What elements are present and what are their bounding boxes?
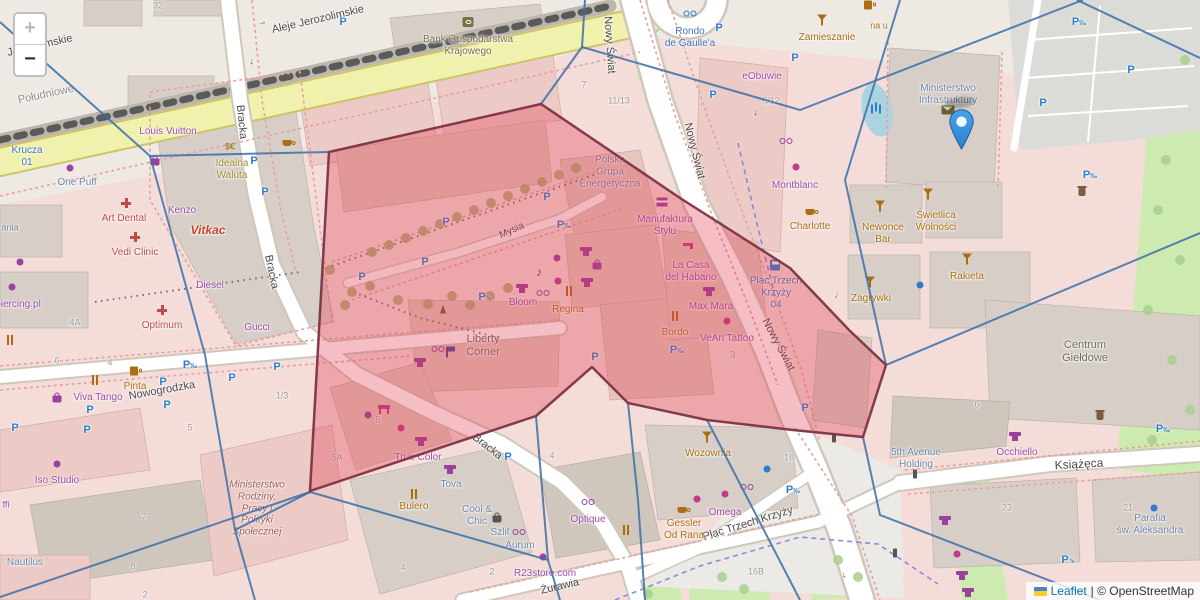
tree-icon — [325, 265, 335, 275]
cup-icon — [678, 507, 687, 513]
monument-icon — [440, 305, 446, 314]
map-label: Zamieszanie — [799, 32, 856, 44]
map-label: 1/3 — [276, 391, 289, 402]
tree-icon — [739, 584, 749, 594]
map-label: Kenzo — [168, 205, 196, 217]
map-label: Vitkac — [191, 223, 226, 237]
map-label: ffi — [3, 500, 10, 511]
parking-icon: P↘ — [1061, 554, 1074, 566]
parking-icon: P — [421, 256, 428, 268]
pipe-icon — [683, 243, 693, 249]
map-label: Iso Studio — [35, 475, 79, 487]
map-label: 32 — [153, 1, 163, 12]
map-label: Nowy Świat — [681, 122, 707, 181]
parking-icon: P — [11, 422, 18, 434]
map-label: 4A — [69, 318, 80, 329]
fork-icon — [565, 286, 573, 296]
map-label: 4 — [549, 451, 554, 462]
map-label: ania — [1, 223, 18, 234]
shirt-icon — [962, 588, 974, 592]
cup-icon — [806, 209, 815, 215]
parking-icon: P‰ — [183, 359, 197, 371]
parking-icon: P — [273, 361, 280, 373]
shirt-icon — [414, 358, 426, 362]
tree-icon — [520, 184, 530, 194]
cocktail-icon — [962, 254, 972, 265]
tree-icon — [554, 170, 564, 180]
map-label: Książęca — [1054, 456, 1103, 473]
tree-icon — [1180, 55, 1190, 65]
parking-icon: P‰ — [557, 219, 571, 231]
fork-icon — [622, 525, 630, 535]
parking-icon: P — [591, 351, 598, 363]
map-label: Viva Tango — [73, 392, 122, 404]
flag-icon — [446, 347, 456, 358]
map-label: Bulero — [400, 501, 429, 513]
map-label: Aurum — [505, 540, 534, 552]
parking-icon: P — [159, 376, 166, 388]
map-label: VeAn Tattoo — [700, 333, 754, 345]
glasses-icon — [432, 346, 445, 352]
parking-icon: P — [715, 22, 722, 34]
tree-icon — [717, 572, 727, 582]
tree-icon — [365, 281, 375, 291]
shirt-icon — [415, 437, 427, 441]
map-label: 7 — [581, 80, 586, 91]
fork-icon — [410, 489, 418, 499]
parking-icon: P‰ — [1072, 16, 1086, 28]
attribution-bar: Leaflet | © OpenStreetMap — [1026, 582, 1200, 600]
tree-icon — [503, 191, 513, 201]
map-label: Wozownia — [685, 448, 731, 460]
parking-icon: P — [339, 16, 346, 28]
map-label: 5 — [375, 415, 380, 426]
dot-icon — [1151, 505, 1158, 512]
map-label: Nowogrodzka — [128, 379, 196, 403]
dot-icon — [694, 496, 701, 503]
map-label: Żurawia — [539, 576, 580, 597]
map-label: Świetlica Wolności — [916, 210, 956, 234]
fork-icon — [671, 311, 679, 321]
map-label: Cool & Chic — [462, 504, 492, 528]
zoom-out-button[interactable]: − — [15, 45, 45, 75]
tl-icon — [913, 470, 917, 479]
map-label: 6 — [54, 356, 59, 367]
map-label: Louis Vuitton — [139, 126, 196, 138]
tl-icon — [832, 434, 836, 443]
shirt-icon — [580, 247, 592, 251]
zoom-control: + − — [13, 12, 47, 77]
map-label: Diesel — [196, 280, 224, 292]
map-label: One Puff — [57, 177, 96, 189]
map-label: Nowy Świat — [759, 317, 797, 374]
tree-icon — [384, 240, 394, 250]
music-icon: ♪ — [536, 266, 542, 278]
cross-icon — [121, 198, 131, 208]
parking-icon: P — [358, 271, 365, 283]
map-label: Mysia — [498, 220, 527, 241]
tree-icon — [347, 287, 357, 297]
bike-icon — [684, 10, 697, 17]
map-label: Regina — [552, 304, 584, 316]
map-label: Ministerstwo Rodziny, Pracy i Polityki S… — [229, 480, 285, 539]
map-label: Centrum Giełdowe — [1062, 339, 1108, 365]
tree-icon — [571, 163, 581, 173]
map-label: Vedi Clinic — [112, 247, 159, 259]
tree-icon — [393, 295, 403, 305]
map-label: 5A — [331, 453, 342, 464]
map-label: Bordo — [662, 327, 689, 339]
dot-icon — [917, 282, 924, 289]
map-label: Nautilus — [7, 557, 43, 569]
shirt-icon — [581, 278, 593, 282]
dot-icon — [554, 255, 561, 262]
parking-icon: P‰ — [786, 484, 800, 496]
map-label: → — [839, 570, 851, 581]
tree-icon — [1153, 205, 1163, 215]
tree-icon — [643, 589, 653, 599]
cocktail-icon — [817, 15, 827, 26]
map-label: 4 — [107, 358, 112, 369]
tree-icon — [485, 291, 495, 301]
map-label: Bloom — [509, 297, 537, 309]
map-label: 11/13 — [608, 96, 630, 107]
map-label: Bracka — [470, 431, 505, 462]
shirt-icon — [516, 284, 528, 288]
map-label: 5 — [187, 423, 192, 434]
parking-icon: P‰ — [670, 344, 684, 356]
map-label: Gucci — [244, 322, 270, 334]
dot-icon — [365, 412, 372, 419]
map-label: R23store.com — [514, 568, 576, 580]
cocktail-icon — [875, 201, 885, 212]
map-label: Rondo de Gaulle'a — [665, 26, 715, 50]
map-label: Charlotte — [790, 221, 831, 233]
tree-icon — [401, 233, 411, 243]
map-label: Newonce Bar — [862, 222, 904, 246]
map-label: Pinta — [124, 381, 147, 393]
shirt-icon — [1009, 432, 1021, 436]
map-label: Zagrywki — [851, 293, 891, 305]
parking-icon: P‰ — [1156, 423, 1170, 435]
tree-icon — [447, 291, 457, 301]
tl-icon — [893, 549, 897, 558]
bag-icon — [593, 263, 602, 270]
map-label: → — [751, 108, 763, 119]
map-label: 2 — [142, 590, 147, 600]
map-label: 6/12 — [762, 96, 780, 107]
map-label: Bracka — [261, 254, 281, 290]
parking-icon: P — [261, 186, 268, 198]
shirt-icon — [444, 465, 456, 469]
parking-icon: P — [709, 89, 716, 101]
map-label: Nowy Świat — [601, 16, 618, 74]
cross-icon — [157, 305, 167, 315]
bus-icon — [770, 260, 780, 271]
map-label: Liberty Corner — [466, 333, 500, 359]
map-label: Idealna Waluta — [216, 158, 249, 182]
beer-icon — [864, 1, 872, 10]
map-label: Montblanc — [772, 180, 818, 192]
map-label: Tova — [440, 479, 461, 491]
map-label: Polska Grupa Energetyczna — [579, 154, 640, 189]
map-label: Parafia św. Aleksandra — [1117, 513, 1184, 537]
map-label: 6 — [974, 400, 979, 411]
market-icon — [378, 405, 390, 409]
bin-icon — [1097, 412, 1104, 420]
tree-icon — [469, 205, 479, 215]
cocktail-icon — [865, 277, 875, 288]
ukraine-flag-icon — [1034, 587, 1047, 596]
map-label: 3 — [730, 350, 735, 361]
map-label: Omega — [709, 507, 742, 519]
tree-icon — [486, 198, 496, 208]
map-label: na u — [870, 21, 888, 32]
map-label: Plac Trzech Krzyży 04 — [750, 275, 802, 310]
map-canvas[interactable]: $€♪PPPPP‰PPP‰PPPPP‰PPP↘PP‰P‰PPPPPPPPP‰PP… — [0, 0, 1200, 600]
cocktail-icon — [702, 432, 712, 443]
dot-icon — [555, 278, 562, 285]
tree-icon — [435, 219, 445, 229]
tree-icon — [537, 177, 547, 187]
parking-icon: P↘ — [478, 291, 491, 303]
bag-icon — [53, 396, 62, 403]
shirt-icon — [956, 571, 968, 575]
map-label: 8 — [130, 562, 135, 573]
osm-attribution: | © OpenStreetMap — [1091, 584, 1194, 598]
tree-icon — [1161, 155, 1171, 165]
tree-icon — [1167, 355, 1177, 365]
dot-icon — [17, 259, 24, 266]
glasses-icon — [582, 499, 595, 505]
marker-pin-icon — [949, 109, 974, 150]
dot-icon — [724, 318, 731, 325]
map-label: 2 — [489, 567, 494, 578]
money-icon: $€ — [225, 143, 235, 152]
map-label: 23 — [1002, 503, 1012, 514]
bank-icon — [463, 17, 474, 27]
map-label: → — [256, 16, 267, 28]
map-label: piercing.pl — [0, 299, 41, 311]
tree-icon — [503, 283, 513, 293]
tree-icon — [1175, 255, 1185, 265]
beer-icon — [130, 367, 138, 376]
parking-icon: P — [791, 52, 798, 64]
parking-icon: P — [543, 191, 550, 203]
glasses-icon — [537, 290, 550, 296]
dot-icon — [540, 554, 547, 561]
map-label: 7 — [141, 512, 146, 523]
cocktail-icon — [923, 189, 933, 200]
cup-icon — [283, 140, 292, 146]
dot-icon — [954, 551, 961, 558]
fountain-icon — [871, 103, 881, 112]
tree-icon — [452, 212, 462, 222]
tree-icon — [1147, 435, 1157, 445]
tree-icon — [465, 300, 475, 310]
tile-label-layer: $€♪PPPPP‰PPP‰PPPPP‰PPP↘PP‰P‰PPPPPPPPP‰PP… — [0, 0, 1200, 600]
map-label: Bank Gospodarstwa Krajowego — [423, 34, 513, 58]
fork-icon — [91, 375, 99, 385]
fork-icon — [6, 335, 14, 345]
map-label: La Casa del Habano — [665, 260, 716, 284]
glasses-icon — [780, 138, 793, 144]
parking-icon: P — [1039, 97, 1046, 109]
map-label: Optimum — [142, 320, 183, 332]
cross-icon — [130, 232, 140, 242]
tree-icon — [853, 572, 863, 582]
tree-icon — [1143, 305, 1153, 315]
parking-icon: P — [228, 372, 235, 384]
tree-icon — [423, 299, 433, 309]
map-label: → — [831, 290, 844, 303]
dot-icon — [793, 164, 800, 171]
map-label: Aleje Jerozolimskie — [271, 3, 366, 37]
map-label: Południowe — [17, 83, 75, 108]
tree-icon — [367, 247, 377, 257]
bag-icon — [151, 159, 160, 166]
map-label: Occhiello — [996, 447, 1037, 459]
dot-icon — [54, 461, 61, 468]
parking-icon: P — [504, 451, 511, 463]
shirt-icon — [939, 516, 951, 520]
map-label: Rakieta — [950, 271, 984, 283]
map-label: 4 — [400, 563, 405, 574]
map-label: 21 — [1123, 503, 1133, 514]
store-icon — [657, 198, 668, 207]
map-label: → — [247, 57, 258, 67]
bin-icon — [1079, 188, 1086, 196]
dot-icon — [9, 284, 16, 291]
dot-icon — [398, 425, 405, 432]
map-label: Manufaktura Stylu — [637, 214, 693, 238]
map-label: Art Dental — [102, 213, 146, 225]
parking-icon: P‰ — [1083, 169, 1097, 181]
map-label: Gessler Od Rana — [664, 518, 704, 542]
parking-icon: P — [163, 399, 170, 411]
parking-icon: P — [86, 404, 93, 416]
leaflet-link[interactable]: Leaflet — [1051, 584, 1087, 598]
tree-icon — [340, 300, 350, 310]
tree-icon — [418, 226, 428, 236]
parking-icon: P — [83, 424, 90, 436]
dot-icon — [764, 466, 771, 473]
map-label: 5th Avenue Holding — [891, 447, 941, 471]
tree-icon — [833, 555, 843, 565]
parking-icon: P — [442, 216, 449, 228]
map-label: Max Mara — [689, 301, 733, 313]
parking-icon: P — [250, 155, 257, 167]
glasses-icon — [741, 484, 754, 490]
map-label: Plac Trzech Krzyży — [701, 504, 794, 544]
tree-icon — [1185, 405, 1195, 415]
map-label: Optique — [570, 514, 605, 526]
parking-icon: P — [1127, 64, 1134, 76]
glasses-icon — [513, 529, 526, 535]
map-label: 16B — [748, 567, 764, 578]
zoom-in-button[interactable]: + — [15, 14, 45, 45]
map-label: eObuwie — [742, 71, 781, 83]
bag-icon — [493, 516, 502, 523]
dot-icon — [67, 165, 74, 172]
map-label: Bracka — [233, 104, 249, 139]
map-label: Krucza 01 — [11, 145, 42, 169]
shirt-icon — [703, 287, 715, 291]
map-label: 16 — [784, 453, 794, 464]
map-label: Szlif — [491, 527, 510, 539]
dot-icon — [722, 491, 729, 498]
map-label: True Color — [395, 452, 442, 464]
parking-icon: P — [801, 402, 808, 414]
